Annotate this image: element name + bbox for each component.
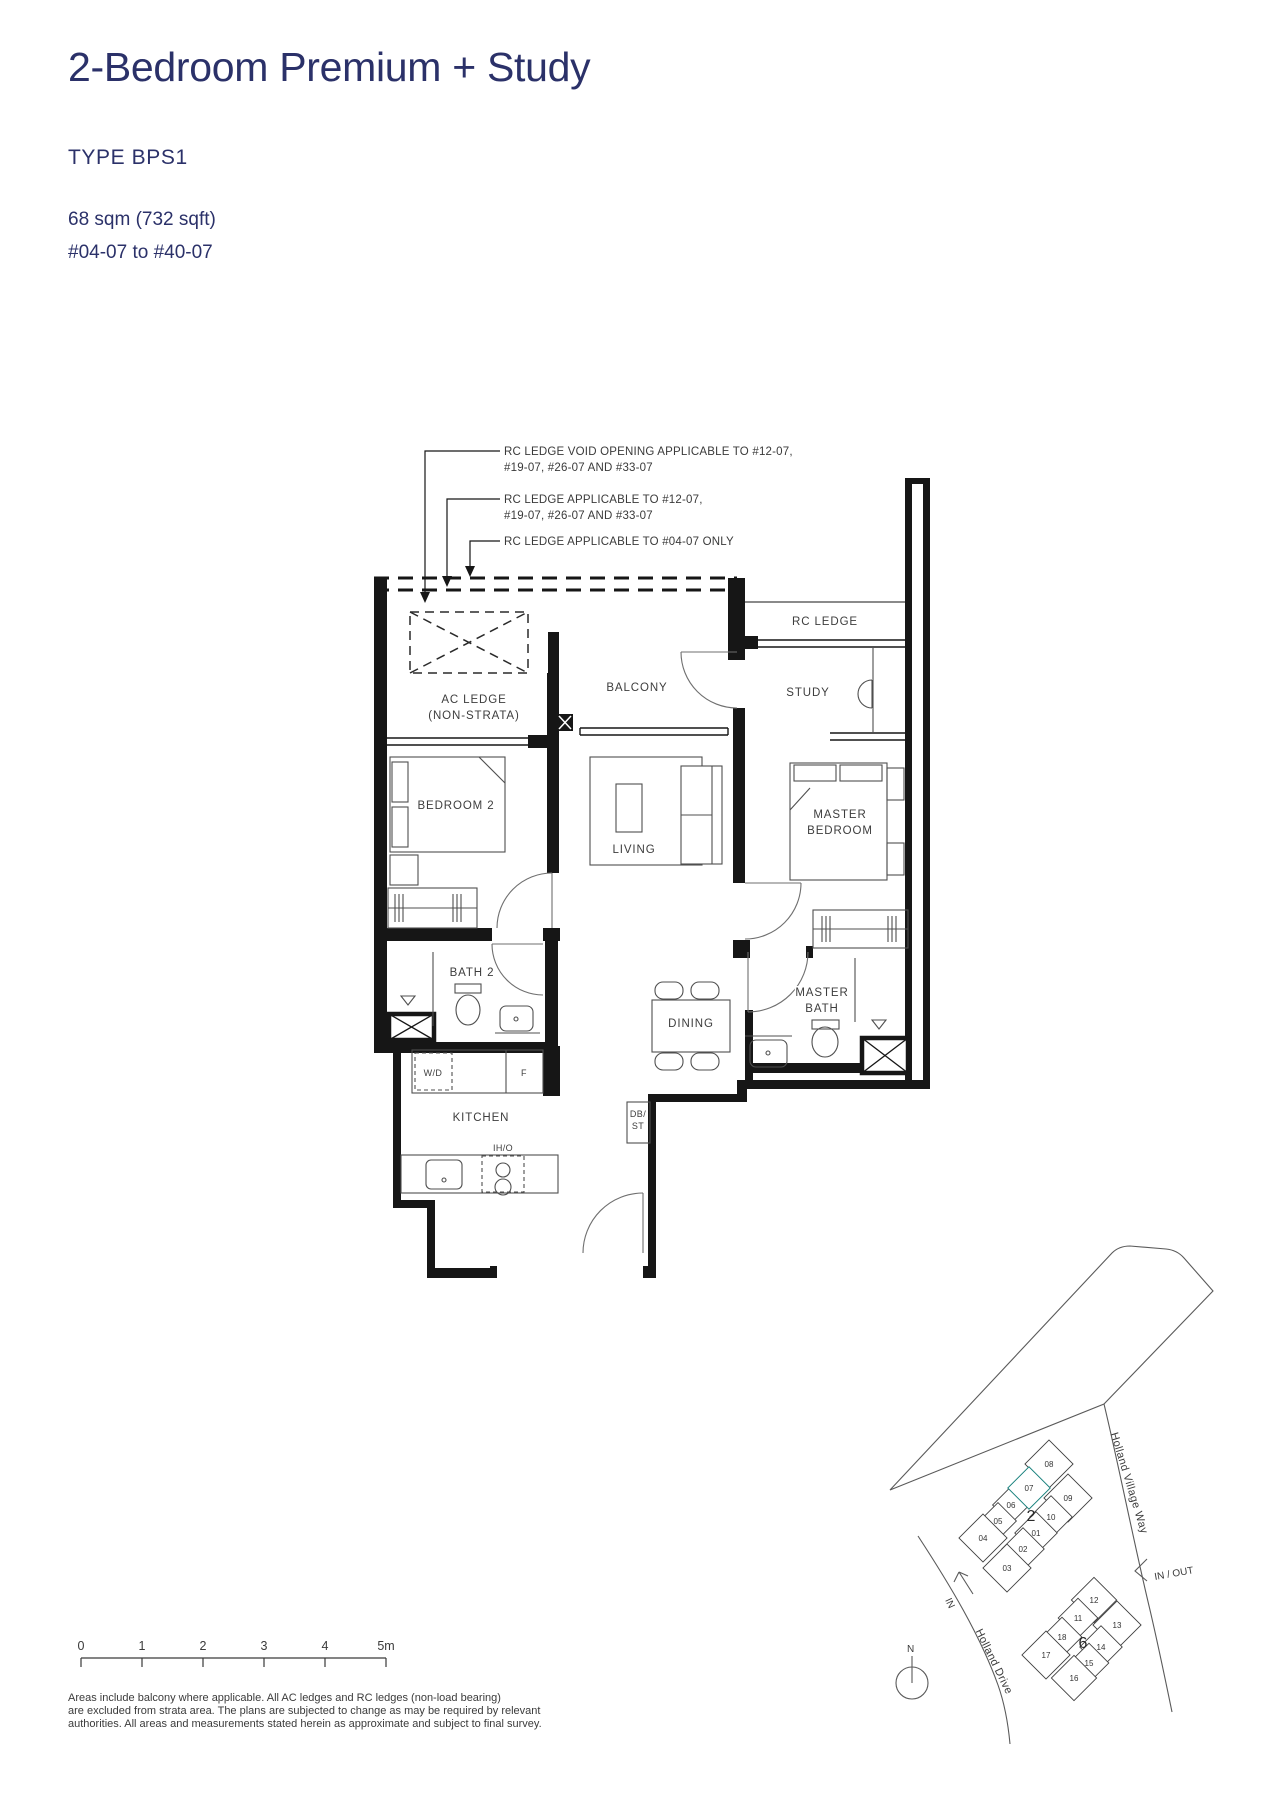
bedroom2-door <box>497 873 552 928</box>
scale-tick-4: 4 <box>322 1639 329 1653</box>
label-in: IN <box>942 1597 956 1611</box>
label-living: LIVING <box>612 844 655 856</box>
master-bedroom-door <box>745 883 801 939</box>
rc-ledge-dashed-lines <box>374 578 737 590</box>
site-unit-label-15: 15 <box>1085 1659 1094 1668</box>
study-furniture <box>858 648 873 733</box>
balcony-xbox <box>557 714 573 731</box>
disclaimer-line-2: are excluded from strata area. The plans… <box>68 1705 608 1718</box>
label-master-1: MASTER <box>813 809 866 821</box>
label-dining: DINING <box>668 1018 714 1030</box>
entry-door <box>583 1193 643 1253</box>
site-plan: 08 09 06 05 10 01 04 02 03 07 2 <box>890 1246 1213 1744</box>
ac-ledge-xbox-bath2 <box>389 1014 434 1040</box>
label-ac-ledge-2: (NON-STRATA) <box>428 710 520 722</box>
label-db-1: DB/ <box>630 1109 646 1119</box>
master-bedroom-furniture <box>790 763 908 948</box>
scale-tick-0: 0 <box>78 1639 85 1653</box>
site-stack-2: 08 09 06 05 10 01 04 02 03 07 2 <box>959 1440 1092 1592</box>
site-unit-label-16: 16 <box>1070 1674 1079 1683</box>
site-unit-label-07: 07 <box>1025 1484 1034 1493</box>
site-unit-label-06: 06 <box>1007 1501 1016 1510</box>
annotation-rc-ledge-1: RC LEDGE APPLICABLE TO #12-07, <box>504 494 703 506</box>
scale-tick-1: 1 <box>139 1639 146 1653</box>
label-fridge: F <box>521 1068 527 1078</box>
disclaimer-line-3: authorities. All areas and measurements … <box>68 1718 608 1731</box>
annotation-rc-void-2: #19-07, #26-07 AND #33-07 <box>504 462 653 474</box>
site-unit-label-01: 01 <box>1032 1529 1041 1538</box>
label-rc-ledge: RC LEDGE <box>792 616 858 628</box>
north-label: N <box>907 1644 914 1655</box>
scale-tick-2: 2 <box>200 1639 207 1653</box>
annotation-rc-void-1: RC LEDGE VOID OPENING APPLICABLE TO #12-… <box>504 446 793 458</box>
rc-ledge-void-box <box>410 612 528 673</box>
north-indicator: N <box>896 1644 928 1699</box>
label-master-bath-1: MASTER <box>795 987 848 999</box>
site-unit-label-17: 17 <box>1042 1651 1051 1660</box>
site-unit-label-12: 12 <box>1090 1596 1099 1605</box>
scale-bar: 0 1 2 3 4 5m <box>78 1639 395 1667</box>
label-db-2: ST <box>632 1121 644 1131</box>
site-unit-label-14: 14 <box>1097 1643 1106 1652</box>
site-unit-label-18: 18 <box>1058 1633 1067 1642</box>
label-balcony: BALCONY <box>606 682 667 694</box>
label-hob: IH/O <box>493 1143 513 1153</box>
floorplan: RC LEDGE BALCONY STUDY AC LEDGE (NON-STR… <box>374 446 930 1278</box>
site-unit-label-04: 04 <box>979 1534 988 1543</box>
scale-tick-5: 5m <box>377 1639 394 1653</box>
label-ac-ledge-1: AC LEDGE <box>441 694 506 706</box>
label-bath2: BATH 2 <box>450 967 495 979</box>
living-furniture <box>590 757 722 865</box>
site-unit-label-03: 03 <box>1003 1564 1012 1573</box>
site-unit-label-02: 02 <box>1019 1545 1028 1554</box>
master-bath-door <box>748 952 808 1012</box>
site-unit-label-09: 09 <box>1064 1494 1073 1503</box>
floorplan-page: 2-Bedroom Premium + Study TYPE BPS1 68 s… <box>0 0 1284 1820</box>
label-holland-drive: Holland Drive <box>973 1627 1015 1696</box>
bedroom2-furniture <box>388 757 505 928</box>
label-master-2: BEDROOM <box>807 825 873 837</box>
site-unit-label-11: 11 <box>1074 1614 1083 1623</box>
disclaimer: Areas include balcony where applicable. … <box>68 1692 608 1732</box>
walls <box>374 478 930 1278</box>
site-stack6-label: 6 <box>1079 1635 1088 1652</box>
label-study: STUDY <box>786 687 829 699</box>
site-unit-label-13: 13 <box>1113 1621 1122 1630</box>
floorplan-drawing: RC LEDGE BALCONY STUDY AC LEDGE (NON-STR… <box>0 0 1284 1820</box>
in-out-marker: IN / OUT <box>1135 1559 1194 1583</box>
annotation-rc-ledge-2: #19-07, #26-07 AND #33-07 <box>504 510 653 522</box>
site-unit-label-10: 10 <box>1047 1513 1056 1522</box>
disclaimer-line-1: Areas include balcony where applicable. … <box>68 1692 608 1705</box>
site-unit-label-05: 05 <box>994 1517 1003 1526</box>
balcony-door <box>681 652 737 708</box>
label-washer-dryer: W/D <box>424 1068 443 1078</box>
label-in-out: IN / OUT <box>1154 1565 1195 1583</box>
site-stack-6: 12 11 13 18 14 17 15 16 6 <box>1022 1577 1141 1700</box>
label-bedroom2: BEDROOM 2 <box>417 800 494 812</box>
label-kitchen: KITCHEN <box>453 1112 510 1124</box>
site-unit-label-08: 08 <box>1045 1460 1054 1469</box>
annotation-rc-ledge-0407: RC LEDGE APPLICABLE TO #04-07 ONLY <box>504 536 734 548</box>
bath2-door <box>492 944 543 995</box>
label-master-bath-2: BATH <box>805 1003 838 1015</box>
scale-tick-3: 3 <box>261 1639 268 1653</box>
in-marker: IN <box>942 1572 973 1610</box>
label-holland-village-way: Holland Village Way <box>1108 1431 1150 1535</box>
ac-ledge-xbox-master <box>862 1038 908 1073</box>
site-stack2-label: 2 <box>1027 1508 1036 1525</box>
